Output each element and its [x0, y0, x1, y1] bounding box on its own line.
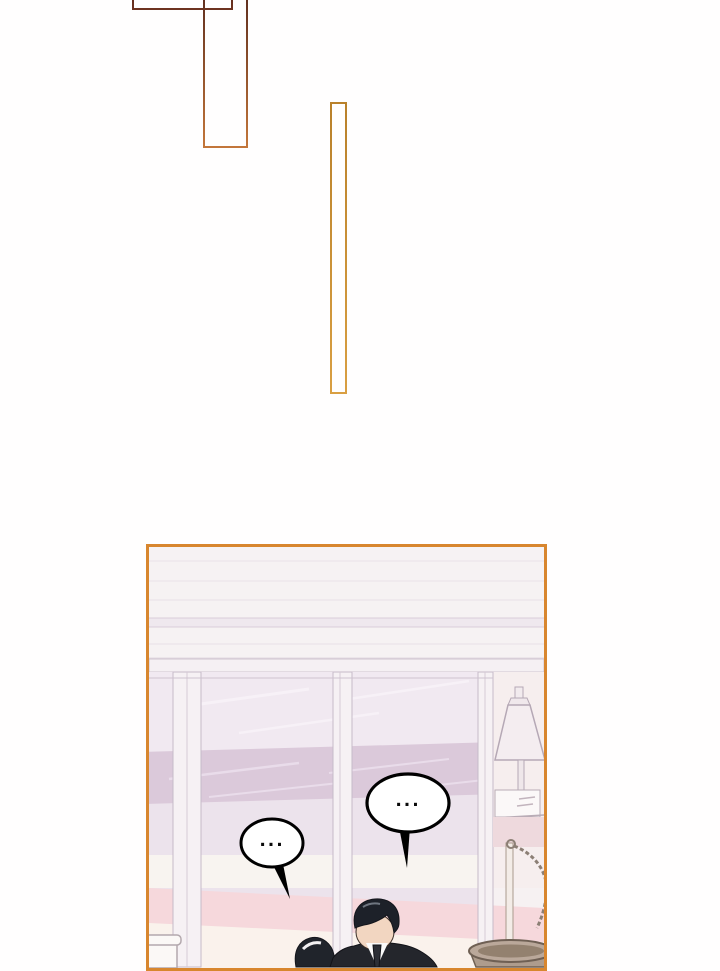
pedestal-cap — [149, 935, 181, 945]
comic-panel: ... ... — [146, 544, 547, 971]
desk-front — [493, 817, 544, 847]
planter-pot-inside — [478, 945, 544, 958]
page: { "page": { "kind": "webtoon comic page"… — [0, 0, 720, 967]
door-header-frame — [149, 659, 544, 672]
desk — [493, 790, 544, 847]
pedestal-base — [149, 943, 177, 968]
lamp-finial-flare — [508, 698, 530, 705]
decor-rectangle-middle-vertical — [330, 102, 347, 394]
tie — [373, 945, 381, 967]
cornice-band — [149, 618, 544, 627]
sign-card — [495, 790, 540, 817]
comic-panel-artwork: ... ... — [149, 547, 544, 968]
lamp-neck — [518, 760, 524, 790]
door-post-middle — [333, 672, 352, 967]
bubble-text: ... — [395, 791, 420, 811]
bubble-text: ... — [259, 831, 284, 851]
wall-top — [149, 547, 544, 665]
stanchion-pole — [506, 843, 513, 953]
pedestal — [149, 935, 181, 968]
decor-rectangle-top-vertical — [203, 0, 248, 148]
lamp-finial — [515, 687, 523, 698]
